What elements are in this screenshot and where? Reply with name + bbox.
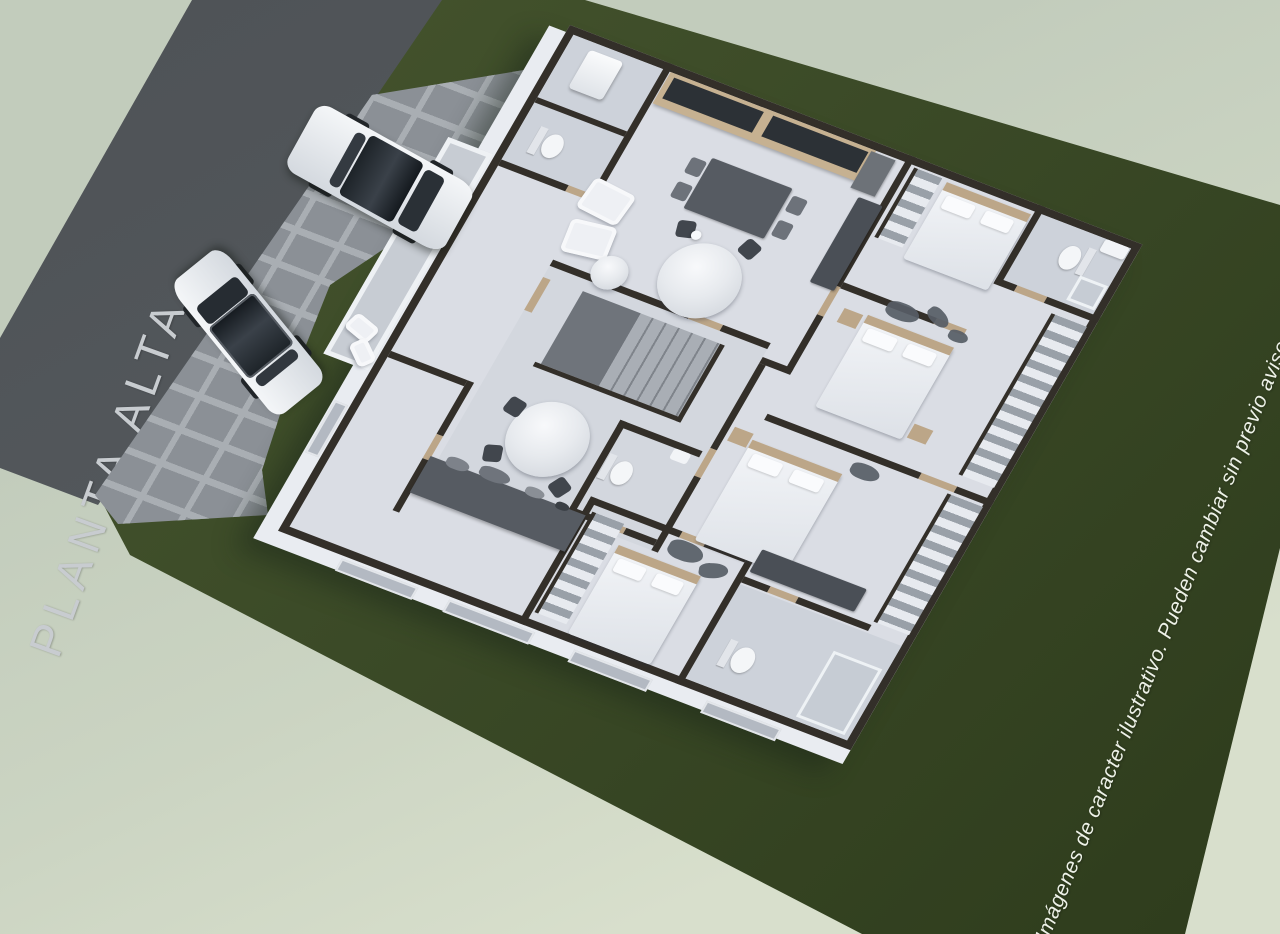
dining-chair (482, 444, 504, 462)
scene: PLANTA ALTA (0, 0, 1280, 934)
